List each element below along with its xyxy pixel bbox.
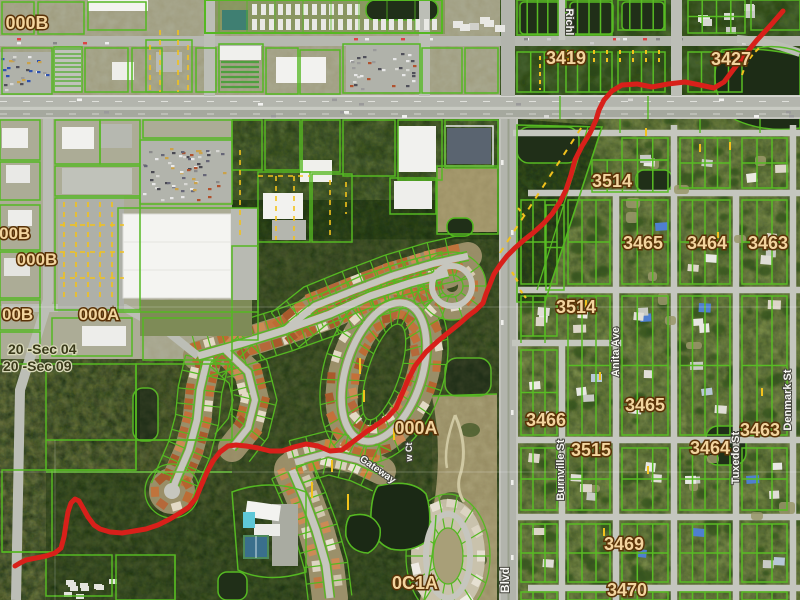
svg-text:3469: 3469: [604, 534, 644, 554]
svg-text:Anita Ave: Anita Ave: [610, 327, 622, 377]
svg-text:3466: 3466: [526, 410, 566, 430]
svg-text:000B: 000B: [0, 224, 30, 243]
svg-text:Tuxedo St: Tuxedo St: [730, 431, 742, 484]
svg-text:00B: 00B: [2, 305, 33, 324]
svg-text:20 -Sec 04: 20 -Sec 04: [8, 341, 77, 357]
svg-text:Richl: Richl: [563, 9, 575, 36]
svg-text:3427: 3427: [711, 49, 751, 69]
svg-text:Denmark St: Denmark St: [782, 369, 794, 430]
svg-text:0C1A: 0C1A: [392, 573, 438, 593]
svg-text:3470: 3470: [607, 580, 647, 600]
svg-text:3463: 3463: [740, 420, 780, 440]
svg-text:20 -Sec 09: 20 -Sec 09: [3, 358, 72, 374]
svg-text:000B: 000B: [17, 250, 58, 269]
svg-text:3464: 3464: [690, 438, 730, 458]
svg-text:3514: 3514: [556, 297, 596, 317]
svg-text:Blvd: Blvd: [498, 567, 512, 593]
svg-text:000B: 000B: [5, 13, 48, 33]
svg-text:w Ct: w Ct: [404, 442, 414, 462]
svg-text:3515: 3515: [571, 440, 611, 460]
svg-text:3514: 3514: [592, 171, 632, 191]
svg-text:000A: 000A: [394, 418, 437, 438]
svg-text:3464: 3464: [687, 233, 727, 253]
svg-text:3463: 3463: [748, 233, 788, 253]
svg-text:Burnville St: Burnville St: [555, 439, 567, 500]
svg-text:3465: 3465: [623, 233, 663, 253]
svg-text:3419: 3419: [546, 48, 586, 68]
svg-text:000A: 000A: [79, 305, 120, 324]
svg-text:3465: 3465: [625, 395, 665, 415]
